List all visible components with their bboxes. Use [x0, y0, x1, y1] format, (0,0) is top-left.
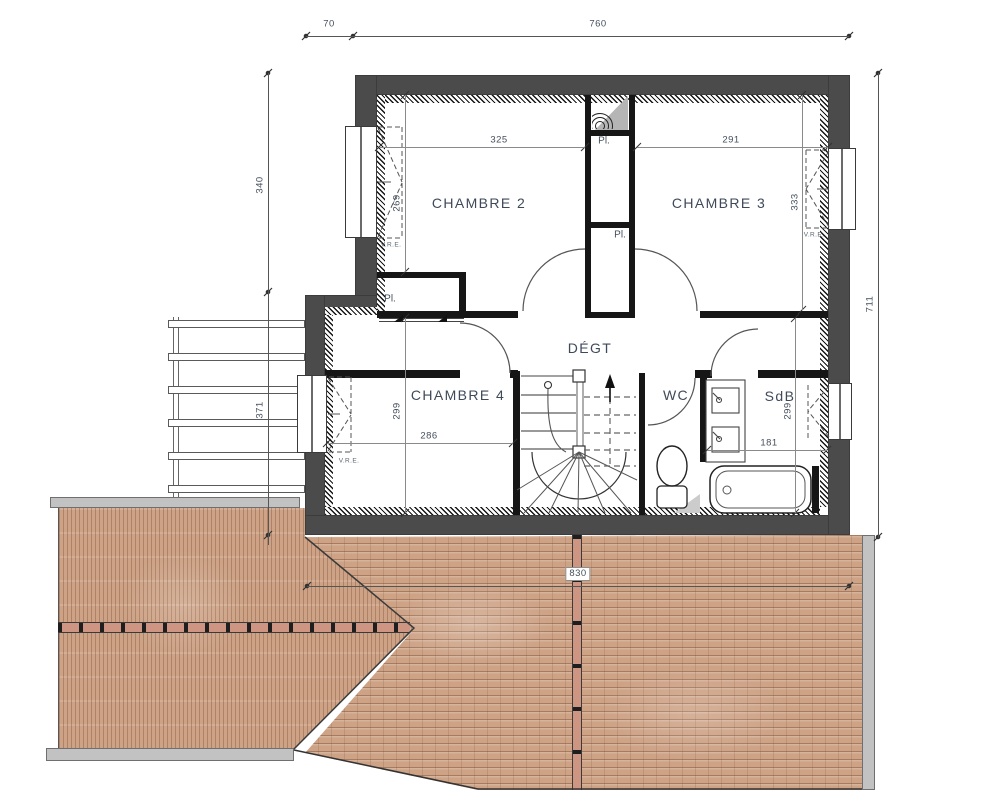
dim-left-upper: 340 [255, 176, 266, 193]
insulation-west-upper [377, 95, 385, 315]
dim-line-chambre3-h [802, 95, 803, 310]
closet-column-bottom-wall [585, 312, 635, 318]
room-label-wc: WC [663, 387, 689, 403]
closet-column-left-wall [585, 95, 591, 318]
pergola-bar [168, 353, 305, 361]
pergola-bar [168, 320, 305, 328]
wing-roof-ridge [58, 622, 410, 633]
dim-chambre3-w: 291 [722, 135, 739, 146]
dim-line-sdb-h [795, 318, 796, 513]
dim-line-left [268, 73, 269, 545]
dim-line-chambre4-w [327, 443, 513, 444]
chambre4-door-arc [460, 323, 510, 373]
shutter-label-chambre4: V.R.E. [339, 458, 360, 465]
pergola-bar [168, 386, 305, 394]
bathtub-side-wall [812, 466, 819, 513]
closet-column-right-wall [629, 95, 635, 318]
chambre2-closet-top-wall [377, 272, 466, 278]
insulation-north [377, 95, 820, 103]
dim-line-roof [307, 586, 849, 587]
window-opening-dashes [328, 127, 829, 452]
shutter-label-chambre2: V.R.E. [381, 242, 402, 249]
dim-chambre4-w: 286 [420, 431, 437, 442]
insulation-east [820, 95, 828, 507]
wing-gutter-top [50, 497, 300, 508]
insulation-step [325, 307, 377, 315]
corridor-south-wall-east [758, 370, 828, 378]
chambre3-door-arc [635, 249, 697, 311]
room-label-chambre3: CHAMBRE 3 [672, 195, 766, 211]
dim-line-chambre3-w [637, 147, 828, 148]
room-label-chambre4: CHAMBRE 4 [411, 387, 505, 403]
pergola-bar [168, 452, 305, 460]
wing-gutter-bottom [46, 748, 294, 761]
wall-north [355, 75, 850, 95]
dim-chambre2-h: 269 [392, 194, 403, 211]
pergola-bar [168, 485, 305, 493]
stair-west-wall [513, 371, 520, 515]
closet-label-2: Pl. [598, 136, 610, 147]
main-roof-fascia [862, 535, 875, 790]
corridor-north-wall-west [377, 311, 518, 318]
chambre4-window [297, 375, 327, 453]
dim-line-sdb-w [707, 450, 827, 451]
corridor-north-wall-east [700, 311, 828, 318]
wall-east [828, 75, 850, 535]
dim-line-chambre2-w [379, 147, 585, 148]
dim-sdb-w: 181 [760, 438, 777, 449]
wall-south [305, 515, 850, 535]
chambre2-window [345, 126, 377, 238]
closet-column-divider-1 [585, 130, 635, 136]
insulation-south [325, 507, 820, 515]
closet-label-1: Pl. [384, 294, 396, 305]
pergola-bar [168, 419, 305, 427]
dim-chambre3-h: 333 [790, 193, 801, 210]
room-label-degagement: DÉGT [568, 340, 613, 356]
floor-plan-canvas: CHAMBRE 2 CHAMBRE 3 CHAMBRE 4 DÉGT WC Sd… [0, 0, 990, 800]
dim-top-main: 760 [589, 19, 606, 30]
staircase [517, 370, 637, 513]
dim-sdb-h: 299 [783, 402, 794, 419]
dim-right-total: 711 [865, 296, 876, 313]
closet-sliding-track [379, 318, 464, 322]
chambre4-north-wall [325, 370, 460, 378]
dim-chambre2-w: 325 [490, 135, 507, 146]
dim-line-chambre2-h [405, 95, 406, 272]
dim-top-offset: 70 [323, 19, 335, 30]
dim-roof-width: 830 [565, 567, 590, 581]
dim-chambre4-h: 299 [392, 402, 403, 419]
corridor-south-wall-mid [695, 370, 712, 378]
dim-line-right [878, 73, 879, 538]
shutter-label-chambre3: V.R.E. [804, 232, 825, 239]
chambre3-window [828, 148, 856, 230]
dim-left-lower: 371 [255, 401, 266, 418]
wc-west-wall [639, 373, 645, 515]
closet-column-divider-2 [585, 222, 635, 228]
chambre2-door-arc [523, 249, 585, 311]
sdb-window [828, 383, 852, 440]
closet-label-3: Pl. [614, 230, 626, 241]
toilet [657, 446, 700, 513]
pergola-post [173, 317, 179, 497]
room-label-chambre2: CHAMBRE 2 [432, 195, 526, 211]
dim-line-top [306, 36, 849, 37]
sdb-door-arc [711, 329, 758, 376]
dim-line-chambre4-h [405, 318, 406, 513]
wc-east-wall [700, 373, 707, 462]
